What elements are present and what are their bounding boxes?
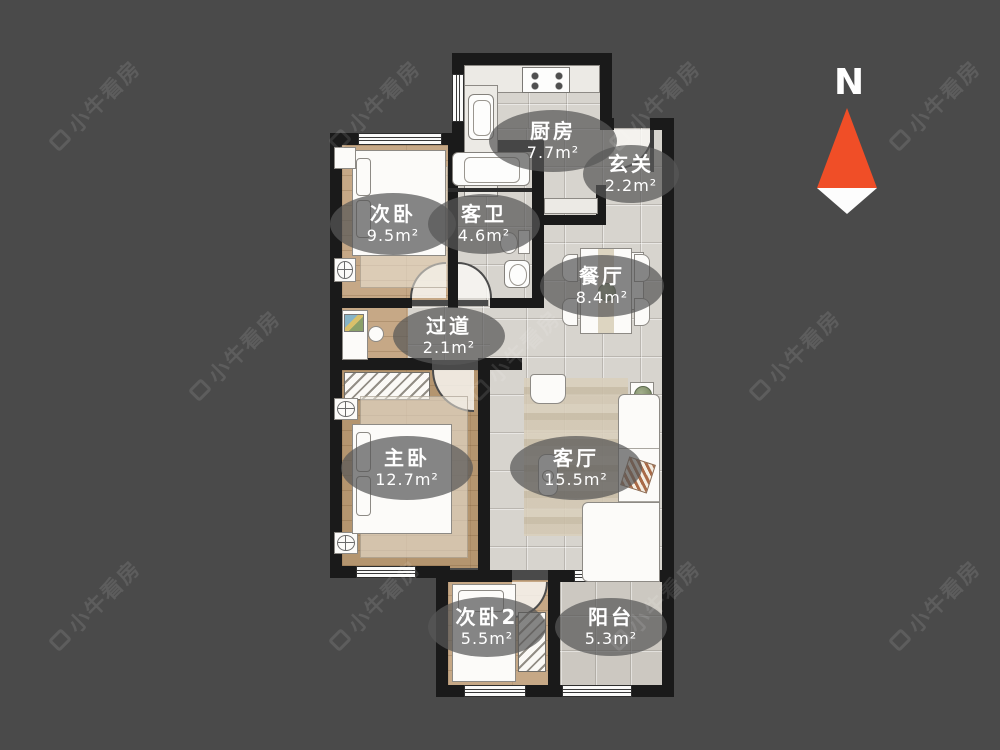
compass-arrow-icon <box>817 108 877 188</box>
room-name: 主卧 <box>384 446 430 470</box>
room-label-master-bedroom: 主卧 12.7m² <box>341 436 473 500</box>
wall-second-bedroom-bottom <box>332 298 412 308</box>
nightstand-crosshair-icon <box>334 258 356 282</box>
compass-arrow-tail-icon <box>817 188 877 214</box>
room-area: 4.6m² <box>458 226 510 245</box>
room-area: 8.4m² <box>576 288 628 307</box>
wall-third-bedroom-top <box>436 570 512 582</box>
room-area: 7.7m² <box>527 143 579 162</box>
room-label-third-bedroom: 次卧2 5.5m² <box>428 597 546 657</box>
room-area: 5.3m² <box>585 629 637 648</box>
watermark-text: 小牛看房 <box>61 553 147 639</box>
room-area: 2.1m² <box>423 338 475 357</box>
wall-bathroom-bottom <box>490 298 544 308</box>
watermark-text: 小牛看房 <box>761 303 847 389</box>
window-third-bedroom <box>464 685 526 697</box>
room-label-balcony: 阳台 5.3m² <box>555 598 667 656</box>
window-balcony <box>562 685 632 697</box>
room-area: 5.5m² <box>461 629 513 648</box>
room-label-guest-bathroom: 客卫 4.6m² <box>428 194 540 254</box>
room-name: 次卧2 <box>456 605 519 629</box>
room-name: 客厅 <box>553 446 599 470</box>
floor-plan-canvas: 厨房 7.7m² 玄关 2.2m² 次卧 9.5m² 客卫 4.6m² 餐厅 8… <box>0 0 1000 750</box>
room-name: 餐厅 <box>579 264 625 288</box>
room-name: 客卫 <box>461 202 507 226</box>
room-area: 12.7m² <box>375 470 439 489</box>
watermark: 小牛看房 <box>183 303 287 407</box>
nightstand-crosshair-icon <box>334 398 358 420</box>
nightstand-crosshair-icon <box>334 532 358 554</box>
watermark: 小牛看房 <box>883 53 987 157</box>
watermark-logo-icon <box>48 128 72 152</box>
bathroom-sink-icon <box>504 260 530 288</box>
room-label-corridor: 过道 2.1m² <box>393 307 505 365</box>
window-kitchen <box>452 74 464 122</box>
stove-icon <box>522 67 570 93</box>
wall-master-living-divider <box>478 358 490 578</box>
watermark-logo-icon <box>188 378 212 402</box>
wall-outer-right <box>662 118 674 697</box>
watermark-text: 小牛看房 <box>201 303 287 389</box>
watermark-text: 小牛看房 <box>901 53 987 139</box>
watermark-text: 小牛看房 <box>901 553 987 639</box>
watermark-text: 小牛看房 <box>61 53 147 139</box>
wall-outer-left <box>330 133 342 578</box>
watermark: 小牛看房 <box>743 303 847 407</box>
room-area: 15.5m² <box>544 470 608 489</box>
room-name: 厨房 <box>530 119 576 143</box>
room-area: 9.5m² <box>367 226 419 245</box>
armchair <box>530 374 566 404</box>
room-name: 玄关 <box>608 152 654 176</box>
compass-north-label: N <box>834 62 864 103</box>
wall-kitchen-bottom <box>534 215 606 225</box>
kitchen-counter-bottom <box>544 198 598 214</box>
nightstand <box>334 147 356 169</box>
desk-chair <box>368 326 384 342</box>
watermark-text: 小牛看房 <box>341 53 427 139</box>
watermark-logo-icon <box>888 628 912 652</box>
wall-entry-stub-right <box>650 118 674 130</box>
room-label-dining-room: 餐厅 8.4m² <box>540 255 664 317</box>
room-label-living-room: 客厅 15.5m² <box>510 436 642 500</box>
sofa-chaise <box>582 502 660 582</box>
room-name: 次卧 <box>370 202 416 226</box>
window-master-bedroom <box>356 566 416 578</box>
shower-partition <box>448 188 532 192</box>
watermark: 小牛看房 <box>43 553 147 657</box>
room-label-hallway: 玄关 2.2m² <box>583 145 679 203</box>
watermark-logo-icon <box>328 628 352 652</box>
wall-kitchen-top <box>452 53 612 65</box>
watermark-logo-icon <box>748 378 772 402</box>
room-name: 阳台 <box>588 605 634 629</box>
window-second-bedroom <box>358 133 442 145</box>
watermark: 小牛看房 <box>43 53 147 157</box>
pillow <box>356 158 371 196</box>
watermark-logo-icon <box>888 128 912 152</box>
watermark: 小牛看房 <box>883 553 987 657</box>
watermark-logo-icon <box>48 628 72 652</box>
room-area: 2.2m² <box>605 176 657 195</box>
desk-monitor-icon <box>344 314 364 332</box>
room-name: 过道 <box>426 314 472 338</box>
